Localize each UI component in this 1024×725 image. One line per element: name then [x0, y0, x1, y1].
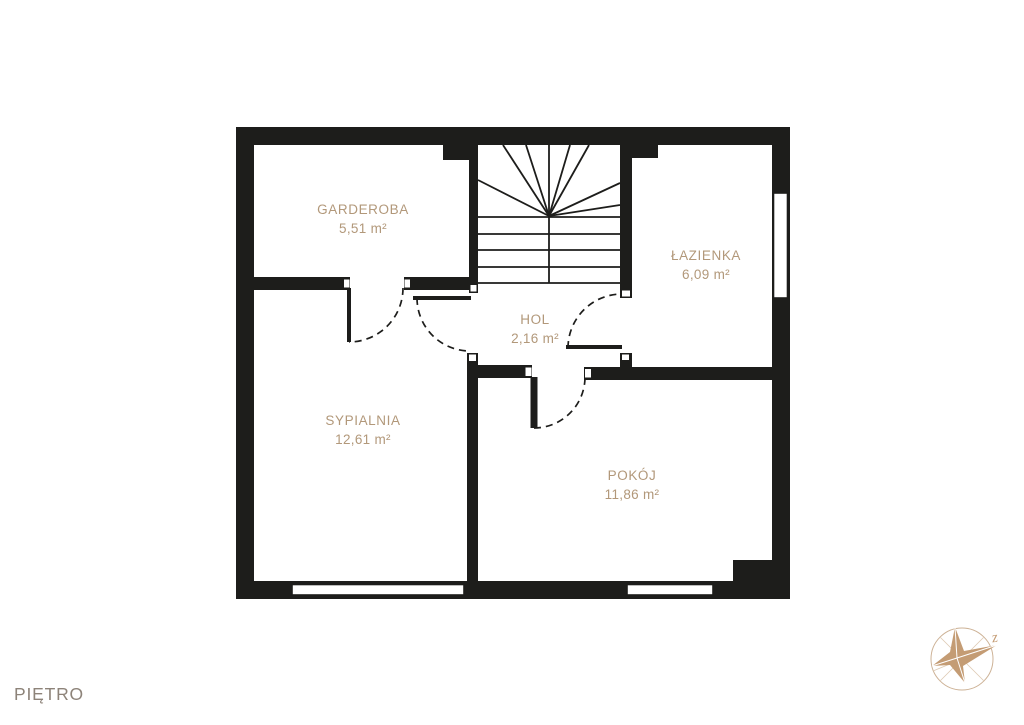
pokoj-north-wall	[584, 367, 772, 380]
door-swing-arc	[349, 288, 403, 342]
sypialnia-east-wall	[467, 353, 478, 582]
window-sypialnia	[292, 585, 464, 596]
room-name: HOL	[511, 310, 559, 329]
hol-south-wall	[478, 365, 532, 378]
room-label-pokoj: POKÓJ 11,86 m²	[605, 466, 660, 504]
room-area: 6,09 m²	[671, 265, 741, 284]
doors	[347, 288, 622, 428]
room-label-sypialnia: SYPIALNIA 12,61 m²	[325, 411, 400, 449]
wall-top	[236, 127, 790, 145]
stairs	[478, 145, 620, 283]
room-name: SYPIALNIA	[325, 411, 400, 430]
door-swing-arc	[534, 377, 585, 428]
floor-title: PIĘTRO	[14, 684, 84, 705]
door-leaf	[347, 288, 351, 342]
room-area: 2,16 m²	[511, 329, 559, 348]
wall-corner-block	[733, 560, 790, 599]
room-label-lazienka: ŁAZIENKA 6,09 m²	[671, 246, 741, 284]
room-area: 5,51 m²	[317, 219, 409, 238]
door-leaf	[413, 296, 471, 300]
room-name: ŁAZIENKA	[671, 246, 741, 265]
compass-rose-icon	[931, 627, 997, 690]
door-sypialnia	[413, 296, 471, 351]
garderoba-south-wall-right	[404, 277, 469, 290]
floor-plan-drawing	[0, 0, 1024, 725]
room-area: 12,61 m²	[325, 430, 400, 449]
door-garderoba	[347, 288, 403, 342]
room-name: POKÓJ	[605, 466, 660, 485]
garderoba-south-wall-left	[236, 277, 350, 290]
window-right-wall	[774, 193, 788, 298]
room-label-garderoba: GARDEROBA 5,51 m²	[317, 200, 409, 238]
room-label-hol: HOL 2,16 m²	[511, 310, 559, 348]
door-pokoj	[531, 377, 586, 428]
door-jambs	[344, 280, 630, 378]
wall-left	[236, 127, 254, 599]
door-leaf	[566, 345, 622, 349]
stairwell-west-wall	[469, 145, 478, 293]
floor-plan-page: GARDEROBA 5,51 m² ŁAZIENKA 6,09 m² HOL 2…	[0, 0, 1024, 725]
window-pokoj	[627, 585, 713, 596]
room-name: GARDEROBA	[317, 200, 409, 219]
door-leaf	[531, 377, 538, 428]
door-swing-arc	[417, 298, 470, 351]
door-lazienka	[566, 294, 622, 349]
room-area: 11,86 m²	[605, 485, 660, 504]
stairwell-east-wall	[620, 145, 632, 298]
door-swing-arc	[568, 294, 622, 348]
